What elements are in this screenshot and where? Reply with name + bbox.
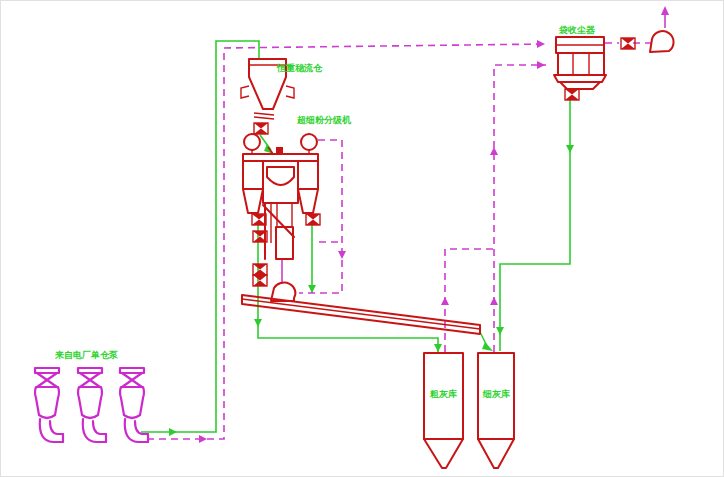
process-flow-diagram: 恒重稳流仓 超细粉分级机 袋收尘器 来自电厂单仓泵 粗灰库 细灰库: [0, 0, 724, 477]
surge-bin-label: 恒重稳流仓: [276, 63, 323, 73]
feed-pump-3: [120, 368, 148, 442]
material-line-pumps-to-surge-bin: [141, 41, 259, 436]
material-line-cyclone-to-conveyor: [308, 223, 316, 293]
air-line-pumps-to-bag-filter: [147, 40, 546, 443]
exhaust-fan: [650, 31, 674, 52]
rotary-valve-cyclone-right: [306, 214, 320, 225]
material-line-classifier-to-coarse-silo: [254, 223, 442, 352]
air-line-filter-to-exhaust: [605, 6, 669, 43]
air-line-silos-to-bag-filter: [441, 61, 546, 352]
feed-pump-2: [78, 368, 106, 442]
cyclone-left: [243, 161, 263, 213]
classifier-label: 超细粉分级机: [296, 115, 352, 125]
diagram-canvas: 恒重稳流仓 超细粉分级机 袋收尘器 来自电厂单仓泵 粗灰库 细灰库: [1, 1, 724, 477]
material-line-bin-to-classifier: [260, 135, 274, 154]
fine-ash-silo: [478, 353, 514, 468]
feed-pumps: [35, 368, 148, 442]
classifier-left-port: [244, 134, 260, 150]
rotary-valve-discharge-2: [253, 264, 267, 275]
duct-valve: [621, 38, 635, 49]
rotary-valve-cyclone-left: [252, 214, 266, 225]
rotary-valve-surge-bin: [254, 123, 268, 134]
rotary-valve-discharge-3: [253, 275, 267, 286]
cyclone-right: [298, 161, 318, 213]
coarse-silo-label: 粗灰库: [429, 389, 457, 399]
material-line-conveyor-to-fine-silo: [480, 332, 493, 351]
bag-filter-label: 袋收尘器: [558, 25, 596, 35]
fine-silo-label: 细灰库: [482, 389, 510, 399]
coarse-ash-silo: [424, 353, 463, 468]
feed-pump-1: [35, 368, 63, 442]
classifier-right-port: [301, 134, 317, 150]
feed-pumps-label: 来自电厂单仓泵: [54, 350, 119, 360]
bag-filter: [554, 37, 606, 89]
material-line-bag-filter-to-fine-silo: [496, 99, 574, 351]
rotary-valve-bag-filter: [565, 89, 579, 100]
